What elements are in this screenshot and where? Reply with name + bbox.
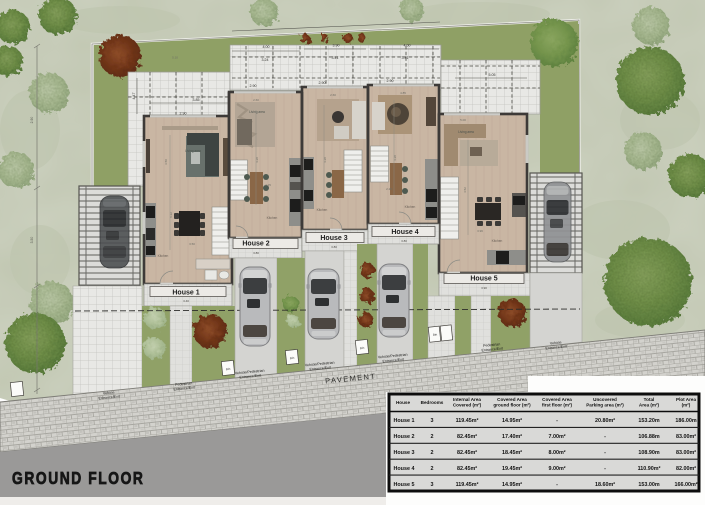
svg-text:3.90: 3.90 xyxy=(481,286,487,290)
svg-text:Covered Area: Covered Area xyxy=(542,397,572,402)
svg-text:Kitchen: Kitchen xyxy=(158,254,169,258)
svg-text:110.90m²: 110.90m² xyxy=(638,466,661,472)
svg-text:Parking area (m²): Parking area (m²) xyxy=(586,403,624,408)
svg-text:119.45m²: 119.45m² xyxy=(456,418,479,424)
svg-text:4.28: 4.28 xyxy=(393,155,397,161)
svg-text:House 3: House 3 xyxy=(320,235,347,242)
svg-text:4.00: 4.00 xyxy=(404,44,411,48)
svg-text:83.00m²: 83.00m² xyxy=(676,450,696,456)
svg-text:House 4: House 4 xyxy=(394,466,415,472)
svg-text:House 4: House 4 xyxy=(391,229,418,236)
svg-text:3.80: 3.80 xyxy=(331,245,337,249)
svg-text:Living area: Living area xyxy=(249,110,265,114)
svg-text:House 1: House 1 xyxy=(172,290,199,297)
svg-text:18.60m²: 18.60m² xyxy=(595,482,615,488)
svg-text:3.80: 3.80 xyxy=(253,251,259,255)
svg-text:first floor (m²): first floor (m²) xyxy=(542,403,573,408)
svg-text:2.90: 2.90 xyxy=(319,81,326,85)
svg-text:5.00: 5.00 xyxy=(460,118,466,122)
svg-text:2.25: 2.25 xyxy=(386,187,392,191)
svg-text:House 2: House 2 xyxy=(242,241,269,248)
svg-text:3.50: 3.50 xyxy=(30,237,34,244)
svg-text:House: House xyxy=(396,400,410,405)
svg-text:GROUND FLOOR: GROUND FLOOR xyxy=(12,470,144,489)
svg-text:2.60: 2.60 xyxy=(330,93,336,97)
svg-text:2: 2 xyxy=(431,450,434,456)
svg-text:4.47: 4.47 xyxy=(132,93,136,100)
svg-text:Living area: Living area xyxy=(458,130,474,134)
svg-text:Bin: Bin xyxy=(226,367,231,371)
svg-text:House 5: House 5 xyxy=(470,276,497,283)
svg-text:153.00m: 153.00m xyxy=(638,482,659,488)
svg-text:4.85: 4.85 xyxy=(400,91,406,95)
svg-text:(m²): (m²) xyxy=(682,403,691,408)
svg-text:14.95m²: 14.95m² xyxy=(502,482,522,488)
svg-text:Kitchen: Kitchen xyxy=(405,205,416,209)
svg-text:4.28: 4.28 xyxy=(323,157,327,163)
svg-text:153.20m: 153.20m xyxy=(638,418,659,424)
svg-text:Bin: Bin xyxy=(360,346,365,350)
svg-text:108.90m: 108.90m xyxy=(638,450,659,456)
svg-text:166.00m²: 166.00m² xyxy=(674,482,697,488)
svg-text:Area (m²): Area (m²) xyxy=(639,403,660,408)
svg-text:3.41: 3.41 xyxy=(402,56,409,60)
svg-text:83.00m²: 83.00m² xyxy=(676,434,696,440)
svg-text:9.00m²: 9.00m² xyxy=(548,466,565,472)
svg-text:-: - xyxy=(556,418,558,424)
svg-text:6.22: 6.22 xyxy=(169,212,173,218)
svg-text:Covered Area: Covered Area xyxy=(497,397,527,402)
svg-text:82.00m²: 82.00m² xyxy=(676,466,696,472)
svg-text:Bin: Bin xyxy=(433,332,438,336)
svg-text:3.96: 3.96 xyxy=(477,229,483,233)
svg-text:Total: Total xyxy=(644,397,655,402)
svg-text:House 2: House 2 xyxy=(394,434,415,440)
svg-text:Kitchen: Kitchen xyxy=(492,239,503,243)
svg-text:Bedrooms: Bedrooms xyxy=(421,400,444,405)
svg-text:3: 3 xyxy=(431,418,434,424)
svg-text:4.28: 4.28 xyxy=(255,157,259,163)
svg-text:-: - xyxy=(604,466,606,472)
svg-text:Uncovered: Uncovered xyxy=(593,397,617,402)
svg-text:House 3: House 3 xyxy=(394,450,415,456)
svg-text:4.00: 4.00 xyxy=(263,45,270,49)
svg-text:2: 2 xyxy=(431,434,434,440)
svg-text:3.24: 3.24 xyxy=(262,58,269,62)
svg-text:3.50: 3.50 xyxy=(189,242,195,246)
svg-text:82.45m²: 82.45m² xyxy=(457,434,477,440)
svg-text:Plot Area: Plot Area xyxy=(676,397,696,402)
svg-text:Covered (m²): Covered (m²) xyxy=(453,403,482,408)
svg-text:Bin: Bin xyxy=(290,356,295,360)
svg-text:2.90: 2.90 xyxy=(30,117,34,124)
svg-text:3: 3 xyxy=(431,482,434,488)
svg-text:-: - xyxy=(604,450,606,456)
svg-text:2: 2 xyxy=(431,466,434,472)
svg-text:8.00m²: 8.00m² xyxy=(548,450,565,456)
svg-text:82.45m²: 82.45m² xyxy=(457,466,477,472)
svg-text:ground floor (m²): ground floor (m²) xyxy=(493,403,531,408)
svg-text:20.80m²: 20.80m² xyxy=(595,418,615,424)
svg-text:3.80: 3.80 xyxy=(401,239,407,243)
svg-text:17.40m²: 17.40m² xyxy=(502,434,522,440)
svg-text:5.10: 5.10 xyxy=(172,56,178,60)
svg-text:19.45m²: 19.45m² xyxy=(502,466,522,472)
svg-text:House 1: House 1 xyxy=(394,418,415,424)
svg-text:5.05: 5.05 xyxy=(489,73,496,77)
svg-text:186.00m: 186.00m xyxy=(675,418,696,424)
svg-text:Living area: Living area xyxy=(185,149,201,153)
svg-text:Kitchen: Kitchen xyxy=(267,216,278,220)
svg-text:House 5: House 5 xyxy=(394,482,415,488)
svg-text:2.60: 2.60 xyxy=(253,98,259,102)
svg-text:3.85: 3.85 xyxy=(193,98,200,102)
svg-text:Kitchen: Kitchen xyxy=(317,208,328,212)
svg-text:4.52: 4.52 xyxy=(463,187,467,193)
svg-text:2.90: 2.90 xyxy=(387,79,394,83)
svg-text:3.41: 3.41 xyxy=(332,56,339,60)
svg-text:-: - xyxy=(556,482,558,488)
svg-text:14.95m²: 14.95m² xyxy=(502,418,522,424)
svg-text:-: - xyxy=(604,434,606,440)
svg-text:119.45m²: 119.45m² xyxy=(456,482,479,488)
svg-text:82.45m²: 82.45m² xyxy=(457,450,477,456)
svg-text:Internal Area: Internal Area xyxy=(453,397,481,402)
svg-text:3.90: 3.90 xyxy=(333,44,340,48)
svg-text:3.50: 3.50 xyxy=(164,159,168,165)
svg-text:3.40: 3.40 xyxy=(183,299,189,303)
svg-text:2.25: 2.25 xyxy=(265,183,271,187)
svg-text:18.45m²: 18.45m² xyxy=(502,450,522,456)
svg-text:2.90: 2.90 xyxy=(250,84,257,88)
svg-text:7.00m²: 7.00m² xyxy=(548,434,565,440)
svg-text:106.88m: 106.88m xyxy=(638,434,659,440)
